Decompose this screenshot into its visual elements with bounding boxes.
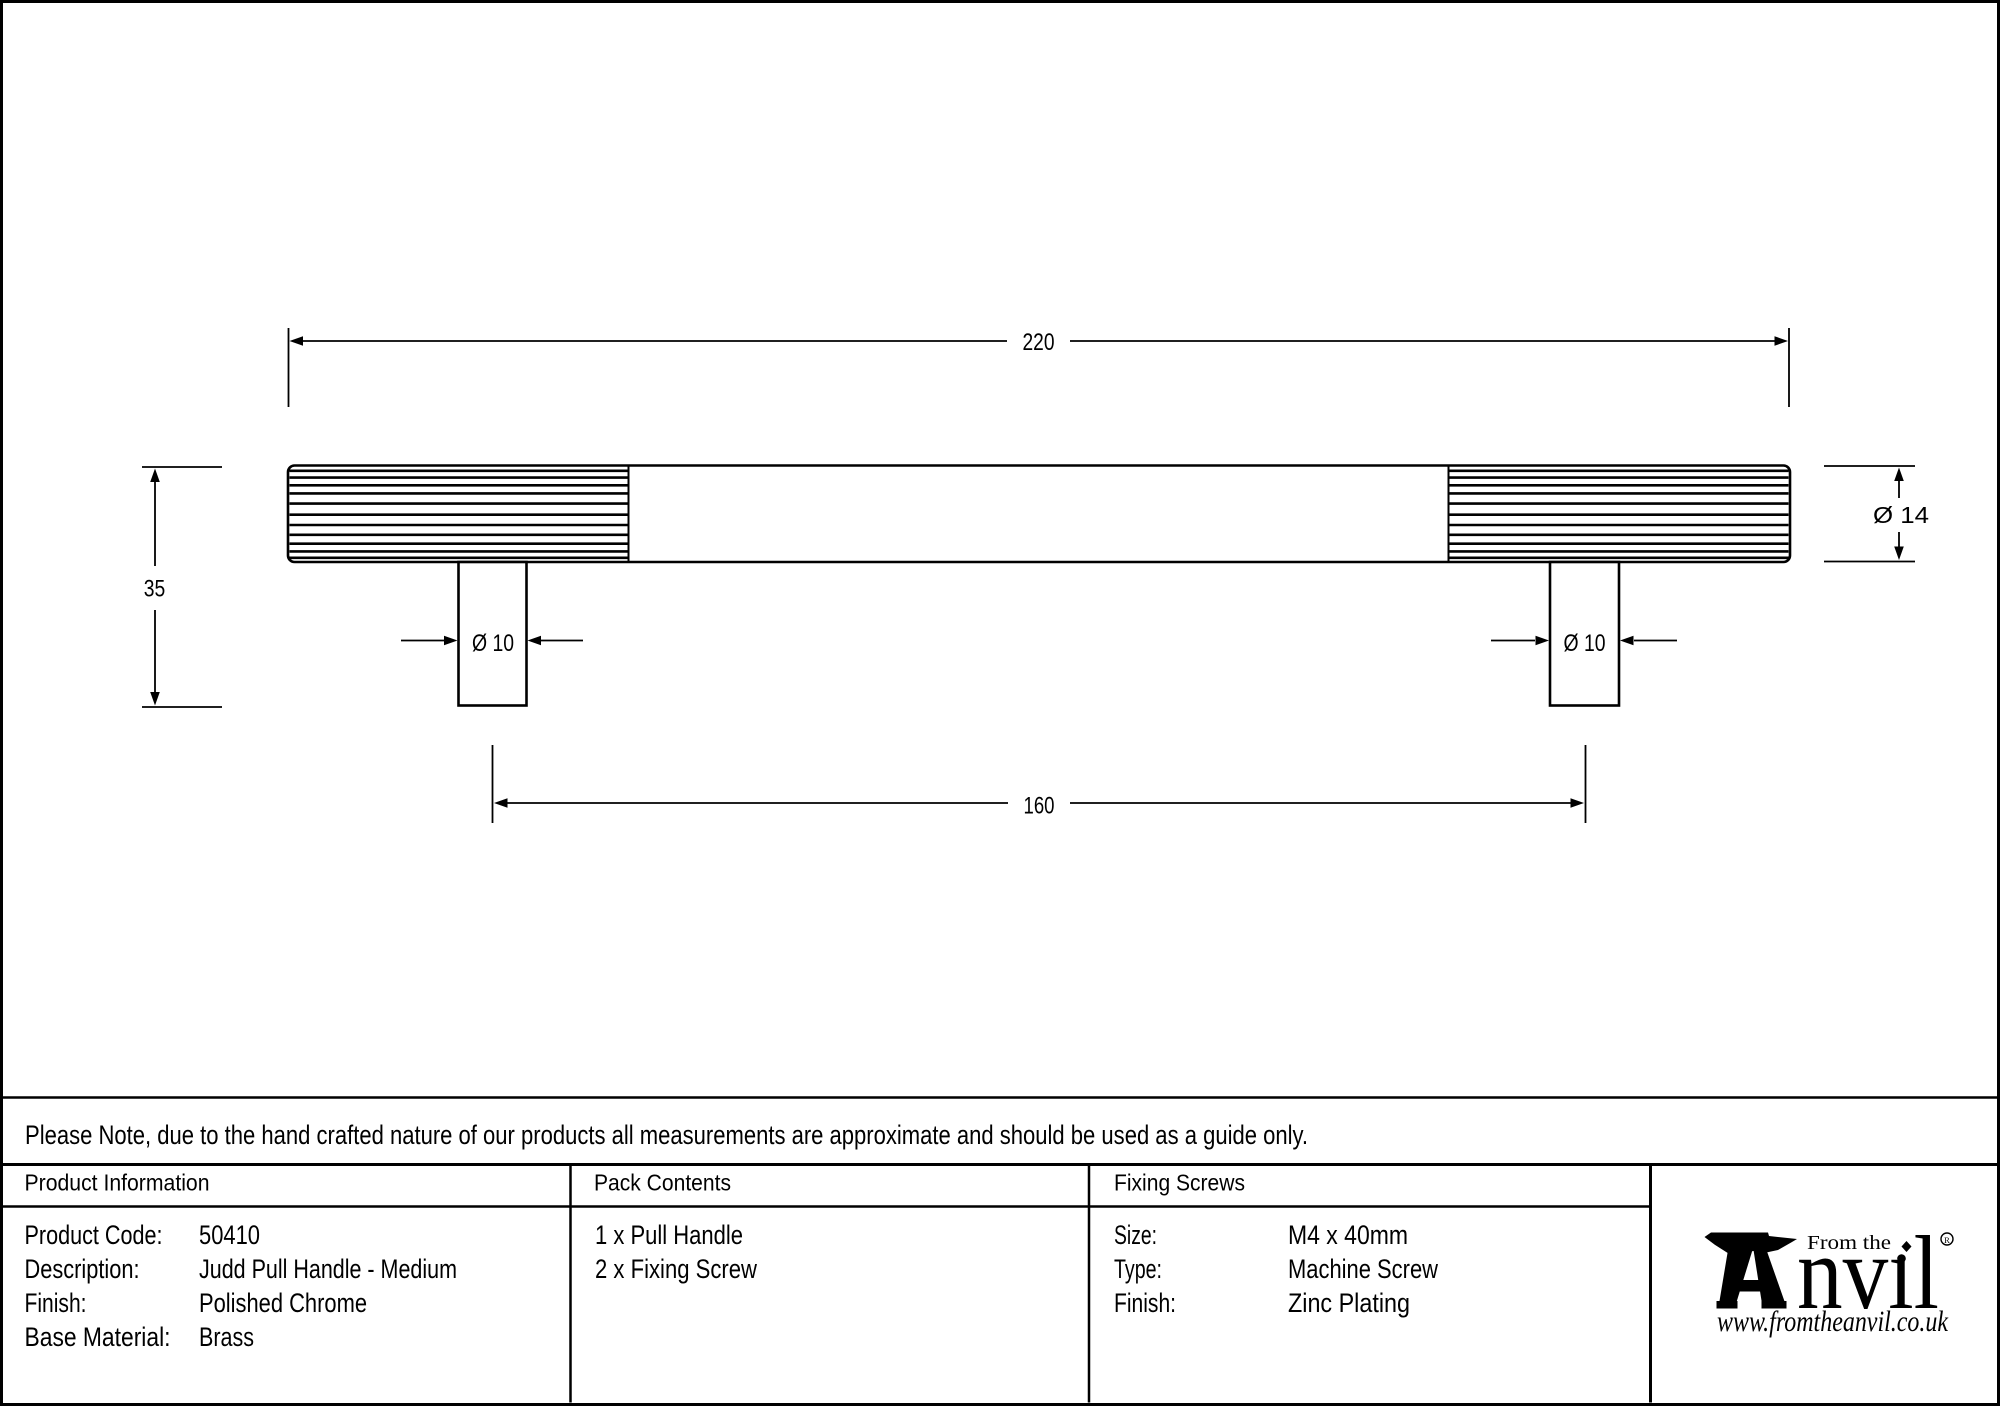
svg-text:Ø 10: Ø 10 [1564, 630, 1606, 657]
svg-text:35: 35 [144, 576, 166, 603]
svg-text:2 x Fixing Screw: 2 x Fixing Screw [595, 1254, 757, 1284]
svg-text:Ø 14: Ø 14 [1873, 502, 1929, 528]
svg-text:Description:: Description: [25, 1254, 140, 1284]
svg-text:220: 220 [1023, 329, 1055, 356]
svg-text:Finish:: Finish: [1114, 1288, 1176, 1318]
svg-text:160: 160 [1024, 793, 1055, 820]
svg-text:Ø 10: Ø 10 [472, 630, 514, 657]
svg-text:Judd Pull Handle - Medium: Judd Pull Handle - Medium [199, 1254, 457, 1284]
svg-text:1 x Pull Handle: 1 x Pull Handle [595, 1220, 743, 1250]
svg-text:Zinc Plating: Zinc Plating [1288, 1288, 1410, 1318]
svg-text:Polished Chrome: Polished Chrome [199, 1288, 367, 1318]
svg-text:M4 x 40mm: M4 x 40mm [1288, 1220, 1408, 1250]
svg-text:www.fromtheanvil.co.uk: www.fromtheanvil.co.uk [1717, 1305, 1949, 1338]
svg-text:Product Code:: Product Code: [25, 1220, 163, 1250]
svg-text:Base Material:: Base Material: [25, 1322, 171, 1352]
svg-text:Fixing Screws: Fixing Screws [1114, 1170, 1245, 1196]
svg-text:Finish:: Finish: [25, 1288, 87, 1318]
svg-text:Pack Contents: Pack Contents [594, 1170, 731, 1196]
svg-text:Please Note, due to the hand c: Please Note, due to the hand crafted nat… [25, 1120, 1308, 1150]
svg-text:Machine Screw: Machine Screw [1288, 1254, 1438, 1284]
svg-text:50410: 50410 [199, 1220, 260, 1250]
svg-text:Size:: Size: [1114, 1220, 1157, 1250]
svg-text:R: R [1944, 1235, 1950, 1245]
svg-text:Brass: Brass [199, 1322, 254, 1352]
svg-text:Type:: Type: [1114, 1254, 1162, 1284]
svg-text:Product Information: Product Information [25, 1170, 210, 1196]
